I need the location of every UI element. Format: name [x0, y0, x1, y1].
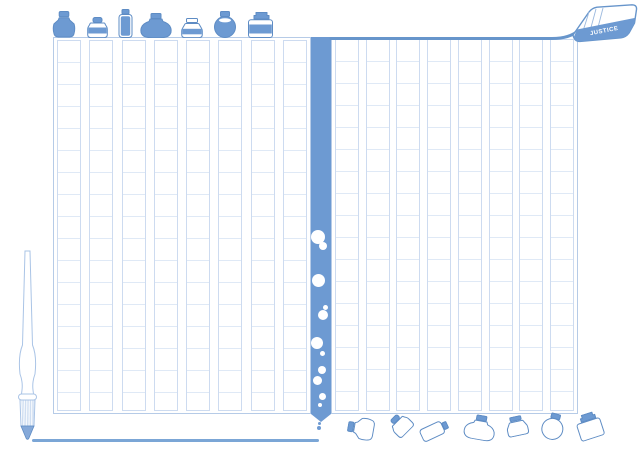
grid-column [519, 39, 543, 411]
grid-column [396, 39, 420, 411]
illustration-canvas: JUSTICE [0, 0, 640, 453]
ink-bubble [318, 366, 326, 374]
dip-pen-icon [14, 250, 42, 441]
ink-drip-dot [317, 426, 322, 431]
ink-bubble [312, 274, 325, 287]
ink-bubble [320, 351, 325, 356]
grid-column [283, 40, 307, 411]
ink-bubble [311, 337, 323, 349]
pen-collar [19, 394, 37, 400]
manuscript-page-left [53, 37, 311, 414]
ink-bubble [313, 376, 322, 385]
ink-bottle-icon [139, 13, 173, 38]
pen-nib [21, 426, 34, 439]
ink-stream-drip [311, 414, 331, 422]
grid-column [427, 39, 451, 411]
ink-drip-dot [318, 422, 321, 425]
ink-bottle-icon [117, 9, 134, 38]
empty-ink-bottle-icon [536, 410, 570, 443]
ink-bubble [318, 310, 328, 320]
grid-column [550, 39, 574, 411]
empty-ink-bottle-icon [461, 412, 499, 443]
ink-bottle-icon [85, 17, 110, 38]
ink-bubble [323, 305, 328, 310]
grid-column [154, 40, 178, 411]
grid-column [57, 40, 81, 411]
ink-bottle-icon [245, 12, 276, 38]
grid-column [89, 40, 113, 411]
grid-column [366, 39, 390, 411]
grid-column [335, 39, 359, 411]
grid-column [218, 40, 242, 411]
ink-bottle-icon [49, 11, 79, 38]
empty-ink-bottle-icon [345, 411, 377, 445]
ink-bubble [319, 242, 327, 250]
grid-column [251, 40, 275, 411]
grid-column [458, 39, 482, 411]
grid-column [186, 40, 210, 411]
justice-tag: JUSTICE [570, 4, 640, 44]
ink-bubble [318, 403, 322, 407]
ink-stream [311, 37, 331, 414]
grid-column [489, 39, 513, 411]
empty-ink-bottle-icon [502, 414, 532, 439]
ink-bubble [319, 393, 326, 400]
ink-line [32, 439, 319, 442]
empty-ink-bottle-icon [418, 417, 451, 445]
pen-handle [19, 251, 35, 394]
ink-bottle-icon [179, 18, 205, 38]
grid-column [122, 40, 146, 411]
ink-bottle-icon [211, 11, 239, 38]
manuscript-page-right [331, 37, 578, 414]
